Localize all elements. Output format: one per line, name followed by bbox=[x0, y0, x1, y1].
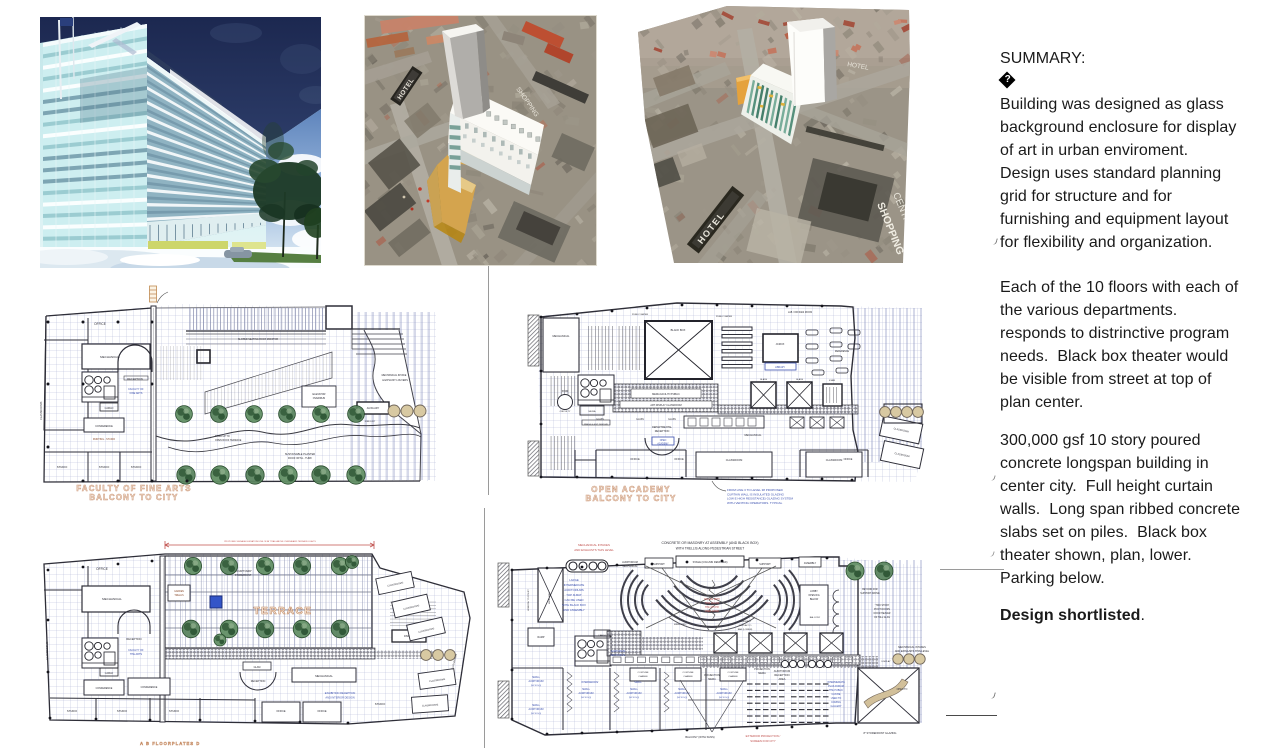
svg-text:CAN BE USED: CAN BE USED bbox=[565, 598, 584, 602]
svg-text:SMALL: SMALL bbox=[582, 688, 591, 691]
svg-text:(50 W SQ): (50 W SQ) bbox=[531, 685, 542, 687]
svg-text:PAINTING - STUDIO: PAINTING - STUDIO bbox=[93, 438, 115, 441]
svg-text:RECEPTION: RECEPTION bbox=[126, 637, 141, 641]
svg-text:INTERMEDIATE’: INTERMEDIATE’ bbox=[581, 681, 599, 684]
svg-text:INTERMEDIATE: INTERMEDIATE bbox=[827, 681, 845, 684]
svg-text:WEST WAY: WEST WAY bbox=[548, 592, 551, 604]
svg-text:RAMP: RAMP bbox=[538, 636, 545, 639]
svg-text:MECHANICAL INTAKE: MECHANICAL INTAKE bbox=[382, 374, 407, 377]
svg-text:BALCONY (WITH SUNS): BALCONY (WITH SUNS) bbox=[685, 735, 714, 739]
svg-text:AREA: AREA bbox=[778, 677, 785, 681]
svg-text:SUSTAINABLE PLANTED: SUSTAINABLE PLANTED bbox=[285, 452, 315, 456]
svg-text:OFFICE: OFFICE bbox=[317, 710, 326, 713]
svg-text:GALLERY: GALLERY bbox=[831, 705, 842, 708]
svg-text:SMALL: SMALL bbox=[630, 688, 639, 691]
svg-text:COSTUME: COSTUME bbox=[683, 672, 694, 674]
svg-text:OFFICE: OFFICE bbox=[844, 458, 853, 461]
svg-text:PUBLIC WATER: PUBLIC WATER bbox=[632, 313, 649, 316]
svg-text:BEYOND FOR: BEYOND FOR bbox=[862, 589, 878, 591]
svg-text:DEPARTMENTAL: DEPARTMENTAL bbox=[652, 426, 672, 429]
svg-text:GARDEN: GARDEN bbox=[174, 590, 184, 593]
svg-text:WITH TRELLIS ALONG PEDESTRIAN: WITH TRELLIS ALONG PEDESTRIAN STREET bbox=[676, 547, 745, 551]
svg-text:CARGO: CARGO bbox=[105, 407, 114, 410]
svg-text:GLASS: GLASS bbox=[760, 378, 768, 381]
svg-text:ASSEMBLY: ASSEMBLY bbox=[804, 562, 817, 565]
svg-text:OFFICE: OFFICE bbox=[96, 567, 108, 571]
svg-text:THE 4TH PIX: THE 4TH PIX bbox=[705, 607, 719, 609]
svg-text:AND INTERIOR DESIGN: AND INTERIOR DESIGN bbox=[325, 696, 354, 700]
svg-text:TRELLIS: TRELLIS bbox=[174, 595, 184, 597]
svg-text:THIS COLOR: THIS COLOR bbox=[705, 603, 719, 605]
svg-text:“TWO STORY: “TWO STORY bbox=[875, 605, 890, 607]
svg-text:STOREFRONT: STOREFRONT bbox=[235, 574, 252, 577]
svg-text:STUDIO: STUDIO bbox=[57, 465, 68, 469]
svg-text:AUDITORIUM: AUDITORIUM bbox=[611, 650, 626, 653]
svg-text:RECEPTION: RECEPTION bbox=[127, 377, 143, 381]
svg-text:OPEN RIG: OPEN RIG bbox=[808, 595, 819, 597]
svg-text:CHANGE: CHANGE bbox=[728, 675, 738, 678]
svg-text:WINDOW TO COURT: WINDOW TO COURT bbox=[528, 589, 530, 611]
svg-text:CLASSROOM: CLASSROOM bbox=[726, 458, 743, 462]
svg-text:CHANGE: CHANGE bbox=[683, 675, 693, 678]
svg-text:AND EXHAUSTS THIS LEVEL: AND EXHAUSTS THIS LEVEL bbox=[895, 650, 930, 653]
svg-text:PROJECTION: PROJECTION bbox=[704, 674, 720, 677]
svg-text:SMALL: SMALL bbox=[634, 681, 642, 684]
svg-text:AUDITORIUMS: AUDITORIUMS bbox=[564, 588, 584, 592]
svg-text:TOP IS BUT: TOP IS BUT bbox=[566, 593, 582, 597]
svg-text:FACULTY OF FINE ARTS: FACULTY OF FINE ARTS bbox=[76, 484, 191, 493]
svg-text:CONFERENCE: CONFERENCE bbox=[95, 425, 113, 428]
svg-text:JCROX: JCROX bbox=[776, 342, 785, 346]
svg-text:INTERMEDIATE: INTERMEDIATE bbox=[564, 583, 585, 587]
svg-text:STUDIO: STUDIO bbox=[99, 465, 110, 469]
svg-text:AND EXHAUSTS THIS LEVEL: AND EXHAUSTS THIS LEVEL bbox=[574, 548, 614, 552]
svg-text:AUDITORIUM: AUDITORIUM bbox=[528, 680, 543, 683]
svg-text:LAB / OFFICES ROOM: LAB / OFFICES ROOM bbox=[788, 311, 812, 314]
svg-text:MECHANICAL: MECHANICAL bbox=[622, 565, 638, 568]
svg-text:STUDIO: STUDIO bbox=[117, 709, 127, 713]
svg-text:WITH VENTING OPERATORS. TYPICA: WITH VENTING OPERATORS. TYPICAL bbox=[727, 501, 783, 505]
svg-text:TERRACE: TERRACE bbox=[254, 606, 313, 617]
svg-text:RECEPTION: RECEPTION bbox=[774, 673, 789, 677]
svg-text:DISPLAY TO: DISPLAY TO bbox=[739, 624, 752, 627]
svg-text:SMALL: SMALL bbox=[532, 676, 541, 679]
svg-text:LARGE: LARGE bbox=[569, 578, 579, 582]
svg-text:BLACK BOX: BLACK BOX bbox=[671, 328, 686, 332]
svg-text:CARGO: CARGO bbox=[105, 672, 114, 675]
svg-text:(50 W SQ): (50 W SQ) bbox=[677, 697, 688, 699]
svg-text:OFFICE: OFFICE bbox=[94, 322, 106, 326]
svg-text:CHANGE: CHANGE bbox=[638, 675, 648, 678]
svg-text:OF TALL GLAS: OF TALL GLAS bbox=[874, 616, 890, 619]
svg-text:PLUS FORUM: PLUS FORUM bbox=[828, 685, 844, 688]
svg-text:STUDIO: STUDIO bbox=[375, 702, 386, 706]
svg-text:BALCONY TO CITY: BALCONY TO CITY bbox=[585, 494, 676, 503]
svg-text:FIRE EXIT: FIRE EXIT bbox=[365, 421, 376, 423]
svg-text:CIRCULTY: CIRCULTY bbox=[560, 411, 571, 413]
svg-text:BAR (LOWER): BAR (LOWER) bbox=[738, 628, 753, 631]
svg-text:AND ASSEMBLY: AND ASSEMBLY bbox=[563, 608, 585, 612]
svg-text:(50 W SQ): (50 W SQ) bbox=[629, 697, 640, 699]
svg-text:GLAM: GLAM bbox=[254, 666, 261, 669]
svg-text:OPEN ROOF TERRACE: OPEN ROOF TERRACE bbox=[215, 439, 242, 442]
svg-text:CONFERENCE: CONFERENCE bbox=[96, 687, 113, 690]
svg-text:CLASSROOMS: CLASSROOMS bbox=[39, 401, 43, 420]
svg-text:COMING: COMING bbox=[831, 701, 841, 704]
svg-text:EXHIBITION RECEPTION: EXHIBITION RECEPTION bbox=[325, 691, 356, 695]
svg-text:ASSEMBLY: ASSEMBLY bbox=[739, 620, 751, 623]
svg-text:RECEPTION: RECEPTION bbox=[655, 430, 670, 433]
svg-text:THE ARTS: THE ARTS bbox=[130, 653, 143, 656]
svg-text:(50 W SQ): (50 W SQ) bbox=[581, 697, 592, 699]
svg-text:STAIR UP TO: STAIR UP TO bbox=[215, 435, 230, 438]
svg-text:MEDIA: MEDIA bbox=[589, 410, 596, 413]
svg-text:MEDIA FACILITY/PUBLIC: MEDIA FACILITY/PUBLIC bbox=[652, 393, 680, 396]
svg-text:CONFERENCE: CONFERENCE bbox=[141, 686, 158, 689]
svg-text:PIVOT DOORS: PIVOT DOORS bbox=[874, 609, 890, 611]
svg-text:MEDIA: MEDIA bbox=[758, 672, 766, 675]
svg-text:MIRRORED: MIRRORED bbox=[674, 624, 686, 626]
svg-text:LIBRARY: LIBRARY bbox=[775, 366, 785, 369]
svg-text:CARGO: CARGO bbox=[598, 634, 606, 637]
svg-text:GLASS: GLASS bbox=[636, 418, 644, 421]
svg-text:PALACE WITH: PALACE WITH bbox=[704, 598, 720, 601]
svg-text:STAIR: STAIR bbox=[829, 379, 836, 382]
svg-text:CLASSROOM: CLASSROOM bbox=[826, 458, 843, 462]
svg-text:GLASS: GLASS bbox=[668, 418, 676, 421]
svg-text:(50 W SQ): (50 W SQ) bbox=[719, 697, 730, 699]
svg-text:OFFICE: OFFICE bbox=[630, 457, 640, 461]
svg-text:THE PUBLIC: THE PUBLIC bbox=[829, 689, 843, 692]
svg-text:BALCONY: BALCONY bbox=[810, 616, 821, 619]
svg-text:& EXHAUST LOUVERS: & EXHAUST LOUVERS bbox=[382, 379, 408, 382]
svg-text:EXTERIOR PROJECTION /: EXTERIOR PROJECTION / bbox=[746, 734, 781, 738]
svg-text:GLASS: GLASS bbox=[796, 378, 804, 381]
svg-text:DISPLAY: DISPLAY bbox=[881, 660, 891, 663]
svg-text:MECHANICAL: MECHANICAL bbox=[744, 433, 762, 437]
svg-text:OPEN ACADEMY: OPEN ACADEMY bbox=[591, 485, 670, 494]
svg-text:(50 W SQ): (50 W SQ) bbox=[531, 713, 542, 715]
svg-text:MECHANICAL: MECHANICAL bbox=[552, 334, 570, 338]
svg-text:SUPPORT: SUPPORT bbox=[759, 563, 771, 566]
svg-text:SUPPORT ABOVE: SUPPORT ABOVE bbox=[860, 592, 880, 595]
svg-text:SMALL: SMALL bbox=[720, 688, 729, 691]
svg-text:MEDIA: MEDIA bbox=[708, 678, 716, 681]
svg-text:ART DISPLAY CLASSROOM: ART DISPLAY CLASSROOM bbox=[650, 404, 681, 407]
svg-text:WITH BLACK BOX: WITH BLACK BOX bbox=[562, 603, 586, 607]
svg-text:MECHANICAL: MECHANICAL bbox=[102, 597, 122, 601]
svg-text:MECHANICAL INTAKES: MECHANICAL INTAKES bbox=[898, 646, 926, 649]
svg-text:OFFICE: OFFICE bbox=[674, 457, 684, 461]
svg-text:PUBLIC WATER: PUBLIC WATER bbox=[716, 315, 733, 318]
svg-text:ELEVATOR: ELEVATOR bbox=[313, 393, 326, 396]
svg-text:OPEN: OPEN bbox=[660, 440, 667, 442]
svg-text:AUDITORIUM: AUDITORIUM bbox=[716, 692, 731, 695]
svg-text:MECHANICAL INTAKES: MECHANICAL INTAKES bbox=[578, 543, 610, 547]
svg-text:CONCRETE OR MASONRY AT ASSEMB: CONCRETE OR MASONRY AT ASSEMBLY (AND BLA… bbox=[661, 541, 758, 545]
svg-text:SLOPED SEATING ROOF MONITOR: SLOPED SEATING ROOF MONITOR bbox=[238, 338, 278, 341]
svg-text:REFERENCE: REFERENCE bbox=[835, 351, 850, 353]
svg-text:AUDITORIUM: AUDITORIUM bbox=[578, 692, 593, 695]
svg-text:BELOW: BELOW bbox=[810, 599, 819, 601]
svg-text:BALCONY TO CITY: BALCONY TO CITY bbox=[89, 493, 178, 502]
svg-text:STUDIO: STUDIO bbox=[67, 709, 77, 713]
svg-text:STUDIO: STUDIO bbox=[131, 465, 142, 469]
svg-text:PROJECTION: PROJECTION bbox=[754, 668, 770, 671]
svg-text:8” STOREFRONT GLAZING: 8” STOREFRONT GLAZING bbox=[864, 731, 897, 735]
svg-text:AUDITORIUM: AUDITORIUM bbox=[622, 561, 638, 564]
svg-text:RECEPTION: RECEPTION bbox=[251, 680, 266, 683]
svg-text:AUDITORIUM: AUDITORIUM bbox=[626, 692, 641, 695]
svg-text:PROPOSED SIGNAGE ELEVATION LIN: PROPOSED SIGNAGE ELEVATION LINE OF AT TR… bbox=[224, 540, 316, 543]
svg-text:AUDITORIUM: AUDITORIUM bbox=[528, 708, 543, 711]
svg-text:ROOF WITH - TURF: ROOF WITH - TURF bbox=[288, 456, 312, 460]
svg-text:USED TO: USED TO bbox=[831, 697, 842, 700]
svg-text:CAN BE: CAN BE bbox=[832, 693, 841, 696]
svg-text:FINE ARTS: FINE ARTS bbox=[130, 392, 143, 395]
svg-text:FACULTY OF: FACULTY OF bbox=[128, 649, 144, 652]
svg-text:MECHANICAL: MECHANICAL bbox=[610, 654, 626, 657]
svg-text:AUDITORIUM: AUDITORIUM bbox=[774, 669, 790, 673]
svg-text:CLASSROOMS: CLASSROOMS bbox=[45, 641, 49, 660]
svg-text:STAIR: STAIR bbox=[562, 390, 569, 393]
svg-text:LOBBY: LOBBY bbox=[810, 591, 818, 593]
svg-text:A B FLOORPLATES D: A B FLOORPLATES D bbox=[140, 741, 200, 746]
svg-text:ACADEMY: ACADEMY bbox=[657, 443, 669, 446]
svg-text:OPEN TO: OPEN TO bbox=[897, 688, 908, 691]
svg-text:DOOR HEAVER: DOOR HEAVER bbox=[874, 612, 891, 615]
svg-text:USED CONIC: USED CONIC bbox=[705, 611, 720, 613]
svg-text:FACULTY OF: FACULTY OF bbox=[128, 388, 144, 391]
svg-text:COSTUME: COSTUME bbox=[728, 672, 739, 674]
svg-text:COSTUME: COSTUME bbox=[638, 672, 649, 674]
svg-text:MECHANICAL: MECHANICAL bbox=[315, 674, 333, 678]
svg-text:SUPPORT: SUPPORT bbox=[653, 563, 665, 566]
svg-text:STUDIO: STUDIO bbox=[169, 709, 179, 713]
svg-text:GLASS: GLASS bbox=[596, 418, 604, 421]
svg-text:PRESS & EXT DISPLAY: PRESS & EXT DISPLAY bbox=[584, 423, 609, 426]
svg-text:AUXILIARY: AUXILIARY bbox=[367, 407, 380, 410]
svg-text:OFFICE: OFFICE bbox=[276, 710, 285, 713]
svg-text:OVERRUN: OVERRUN bbox=[313, 397, 326, 400]
svg-text:SCREEN FOR CITY: SCREEN FOR CITY bbox=[750, 739, 776, 743]
svg-text:SMALL: SMALL bbox=[532, 704, 541, 707]
svg-text:MECHANICAL: MECHANICAL bbox=[100, 355, 120, 359]
